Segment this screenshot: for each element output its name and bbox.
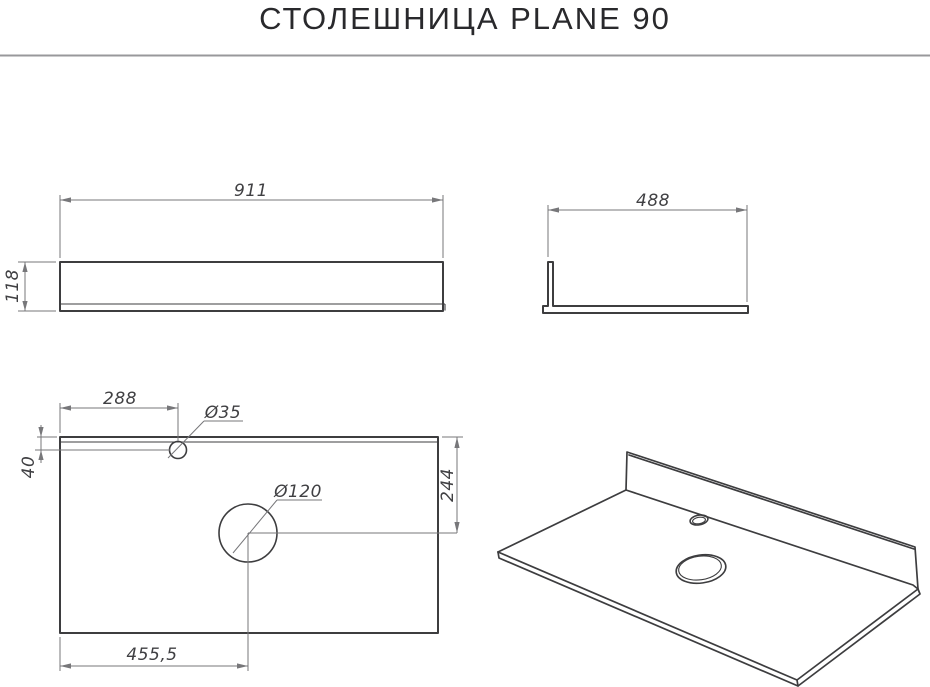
dimension-depth-488: 488 bbox=[548, 191, 747, 302]
drawing-canvas: 911 118 488 bbox=[0, 0, 930, 687]
backsplash-bottom-edge bbox=[626, 490, 918, 589]
faucet-x-label: 288 bbox=[103, 389, 137, 409]
arrowhead bbox=[38, 427, 43, 437]
callout-faucet-diameter: Ø35 bbox=[168, 403, 243, 458]
arrowhead bbox=[432, 197, 443, 202]
arrowhead bbox=[548, 207, 559, 212]
dimension-height-118: 118 bbox=[3, 262, 56, 311]
dimension-width-911: 911 bbox=[60, 181, 443, 258]
arrowhead bbox=[22, 262, 27, 272]
arrowhead bbox=[454, 522, 459, 533]
arrowhead bbox=[60, 663, 71, 668]
arrowhead bbox=[60, 197, 71, 202]
side-depth-label: 488 bbox=[636, 191, 670, 211]
arrowhead bbox=[60, 405, 71, 410]
side-view: 488 bbox=[543, 191, 748, 313]
arrowhead bbox=[38, 450, 43, 460]
backsplash-top-thickness bbox=[629, 455, 914, 549]
slab-front-edges bbox=[498, 552, 918, 680]
technical-drawing-page: СТОЛЕШНИЦА PLANE 90 911 118 bbox=[0, 0, 930, 687]
dimension-faucet-x-288: 288 bbox=[60, 389, 178, 441]
backsplash-panel bbox=[626, 452, 918, 589]
dimension-faucet-y-40: 40 bbox=[19, 425, 57, 478]
drain-x-label: 455,5 bbox=[126, 645, 177, 665]
slab-left-back-edge bbox=[498, 490, 626, 552]
front-view: 911 118 bbox=[3, 181, 445, 311]
faucet-hole-circle bbox=[170, 442, 187, 459]
drain-diameter-label: Ø120 bbox=[273, 482, 322, 502]
countertop-plan-outline bbox=[60, 437, 438, 633]
faucet-diameter-label: Ø35 bbox=[204, 403, 242, 423]
dimension-drain-y-244: 244 bbox=[438, 437, 463, 533]
dimension-drain-x-455-5: 455,5 bbox=[60, 637, 248, 671]
callout-drain-diameter: Ø120 bbox=[233, 482, 322, 553]
iso-view bbox=[498, 452, 920, 686]
faucet-y-label: 40 bbox=[19, 456, 39, 479]
arrowhead bbox=[237, 663, 248, 668]
front-width-label: 911 bbox=[234, 181, 268, 201]
arrowhead bbox=[736, 207, 747, 212]
arrowhead bbox=[22, 301, 27, 311]
arrowhead bbox=[454, 437, 459, 448]
countertop-side-profile bbox=[543, 262, 748, 313]
arrowhead bbox=[167, 405, 178, 410]
drain-hole-iso bbox=[674, 552, 727, 587]
drain-y-label: 244 bbox=[438, 468, 458, 502]
front-height-label: 118 bbox=[3, 269, 23, 303]
leader-line bbox=[233, 500, 277, 553]
slab-front-right-thickness bbox=[798, 589, 920, 686]
top-view: 288 Ø35 40 Ø120 bbox=[19, 389, 463, 671]
